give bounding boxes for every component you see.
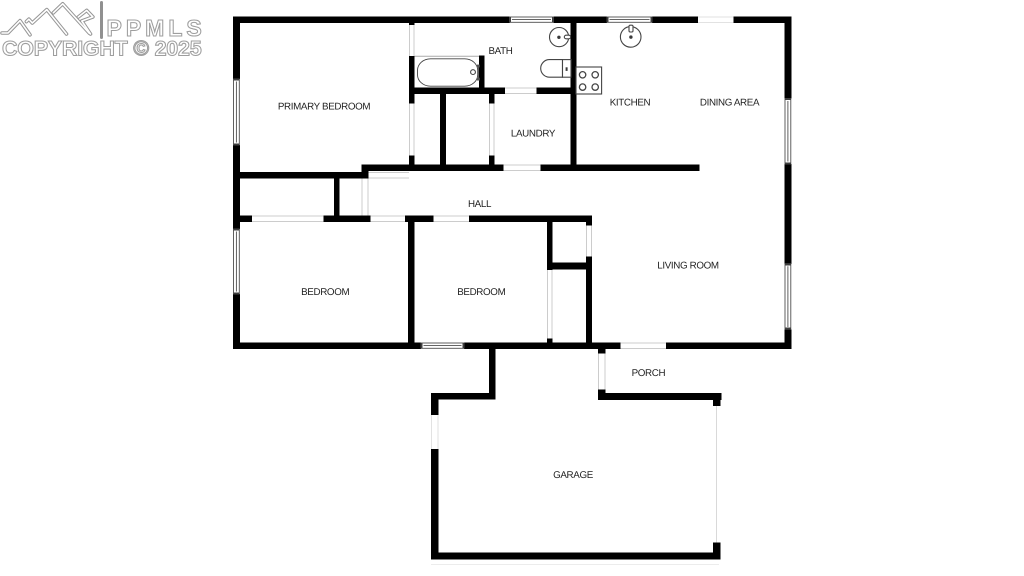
svg-text:GARAGE: GARAGE [553,470,594,481]
svg-text:LAUNDRY: LAUNDRY [511,129,556,140]
svg-text:BEDROOM: BEDROOM [457,287,505,298]
svg-text:HALL: HALL [468,199,492,210]
svg-text:BEDROOM: BEDROOM [301,287,349,298]
svg-text:BATH: BATH [488,46,512,57]
svg-text:KITCHEN: KITCHEN [610,97,651,108]
svg-text:COPYRIGHT © 2025: COPYRIGHT © 2025 [2,37,202,61]
svg-text:PORCH: PORCH [632,368,666,379]
svg-text:DINING AREA: DINING AREA [700,98,760,109]
svg-text:PRIMARY BEDROOM: PRIMARY BEDROOM [278,102,371,113]
svg-text:LIVING ROOM: LIVING ROOM [657,261,719,272]
